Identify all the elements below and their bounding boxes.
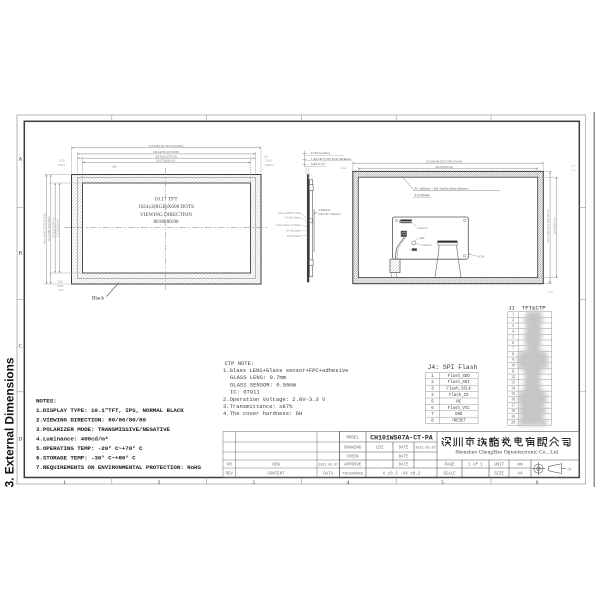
svg-text:SCALE: SCALE — [443, 473, 456, 477]
svg-text:224.72(AA) ±0.2: 224.72(AA) ±0.2 — [156, 160, 176, 163]
svg-text:1.DISPLAY TYPE: 10.1″TFT, IP: 1.DISPLAY TYPE: 10.1″TFT, IPS, NORMAL BL… — [36, 407, 184, 414]
svg-text:Connector: Connector — [417, 227, 428, 230]
svg-text:3. External Dimensions: 3. External Dimensions — [3, 357, 17, 487]
svg-text:3.POLARIZER MODE: TRANSMISSIV: 3.POLARIZER MODE: TRANSMISSIVE/NEGATIVE — [36, 426, 171, 433]
svg-text:3.Transmittance: ≥87%: 3.Transmittance: ≥87% — [223, 403, 293, 410]
svg-text:41.4: 41.4 — [341, 167, 346, 170]
svg-text:CONTENT: CONTENT — [267, 473, 285, 477]
svg-text:1.4(LCD+CTP) Total thickness: 1.4(LCD+CTP) Total thickness — [311, 157, 352, 161]
svg-text:229.56(3M VA): 229.56(3M VA) — [435, 166, 453, 169]
svg-text:16: 16 — [511, 398, 515, 402]
svg-text:5: 5 — [512, 335, 514, 339]
svg-text:A: A — [18, 157, 22, 163]
svg-text:9±0.2: 9±0.2 — [58, 285, 65, 288]
svg-text:Connector: Connector — [421, 244, 432, 247]
svg-text:CHECK: CHECK — [347, 455, 360, 459]
svg-text:253.64(3M OUTLINE 253.64): 253.64(3M OUTLINE 253.64) — [426, 159, 462, 163]
svg-text:VIEWING DIRECTION: VIEWING DIRECTION — [140, 212, 192, 218]
svg-text:3: 3 — [252, 480, 255, 486]
svg-text:12: 12 — [511, 375, 515, 379]
svg-text:2.66±0.2: 2.66±0.2 — [265, 164, 275, 167]
svg-text:1.3MAX: 1.3MAX — [318, 208, 330, 212]
svg-text:6: 6 — [536, 480, 539, 486]
svg-text:3.15: 3.15 — [571, 164, 576, 167]
svg-text:Shenzhen ChengHao Optoelectron: Shenzhen ChengHao Optoelectronic Co., Lt… — [455, 450, 559, 456]
svg-text:TFT:0.3mm: TFT:0.3mm — [287, 235, 301, 238]
svg-text:253.64±0.3(CTP OUTLINE): 253.64±0.3(CTP OUTLINE) — [149, 144, 184, 148]
svg-text:8: 8 — [512, 352, 514, 356]
svg-text:146.12±0.3(CTP OUTLINE): 146.12±0.3(CTP OUTLINE) — [44, 213, 47, 244]
svg-text:15: 15 — [511, 392, 515, 396]
svg-text:NEW: NEW — [272, 464, 280, 468]
svg-text:Flash_VCC: Flash_VCC — [448, 406, 471, 411]
svg-text:18: 18 — [511, 409, 515, 413]
svg-text:7: 7 — [512, 347, 514, 351]
svg-text:Flash_SCLK: Flash_SCLK — [446, 387, 471, 392]
svg-text:12.35: 12.35 — [59, 160, 66, 163]
svg-text:142.12(3M OUTLINE): 142.12(3M OUTLINE) — [48, 216, 51, 241]
svg-text:PCBA: PCBA — [478, 256, 485, 259]
svg-text:OCA:0.15mm: OCA:0.15mm — [285, 216, 302, 219]
svg-text:1: 1 — [512, 313, 514, 317]
svg-text:(with FPC+adhesive): (with FPC+adhesive) — [318, 213, 340, 216]
svg-text:V0: V0 — [227, 464, 232, 468]
svg-text:GND: GND — [455, 413, 463, 417]
svg-text:B: B — [18, 251, 22, 257]
svg-text:Flash_SDO: Flash_SDO — [448, 374, 471, 379]
svg-text:NC: NC — [456, 400, 461, 404]
svg-text:J1 TFT&CTP: J1 TFT&CTP — [508, 304, 546, 311]
svg-text:DRAWING: DRAWING — [344, 447, 362, 451]
svg-text:J4: SPI Flash: J4: SPI Flash — [428, 364, 478, 371]
svg-text:80/80/80/80: 80/80/80/80 — [153, 219, 178, 225]
svg-text:Glass Sensor:0.55mm: Glass Sensor:0.55mm — [276, 224, 301, 227]
svg-text:X ±0.3 XX ±0.2: X ±0.3 XX ±0.2 — [383, 473, 421, 477]
svg-text:Flash_SDI: Flash_SDI — [448, 380, 471, 385]
svg-text:10±0.2: 10±0.2 — [58, 164, 66, 167]
svg-text:APPROVE: APPROVE — [344, 464, 362, 468]
svg-text:DATA: DATA — [323, 473, 333, 477]
svg-text:1 of 1: 1 of 1 — [468, 463, 483, 468]
svg-text:GLASS SENSOR: 0.55mm: GLASS SENSOR: 0.55mm — [230, 381, 297, 388]
svg-text:1.Glass LENS+Glass sensor+FPC+: 1.Glass LENS+Glass sensor+FPC+adhesive — [223, 367, 348, 374]
svg-text:(3): (3) — [568, 467, 572, 471]
svg-text:CH101WS07A-CT-PA: CH101WS07A-CT-PA — [370, 434, 433, 441]
svg-text:229.56±0.2(TP VA): 229.56±0.2(TP VA) — [155, 155, 177, 158]
svg-text:1.15: 1.15 — [571, 169, 576, 172]
svg-text:5.OPERATING TEMP: -20° C~+70°: 5.OPERATING TEMP: -20° C~+70° C — [36, 445, 143, 452]
svg-text:4: 4 — [512, 330, 514, 334]
svg-text:Flash_CS: Flash_CS — [449, 393, 469, 398]
svg-text:120.04(3M VA): 120.04(3M VA) — [554, 217, 557, 234]
svg-text:249.64(3M OUTLINE): 249.64(3M OUTLINE) — [153, 151, 179, 154]
svg-text:3: 3 — [512, 324, 514, 328]
svg-text:PAGE: PAGE — [445, 464, 455, 468]
svg-text:NOTES:: NOTES: — [36, 398, 57, 405]
svg-text:Glass LENS:0.7mm: Glass LENS:0.7mm — [278, 212, 301, 215]
svg-text:7.REQUIREMENTS ON ENVIRONMENTA: 7.REQUIREMENTS ON ENVIRONMENTAL PROTECTI… — [36, 464, 201, 471]
svg-text:CTP NOTE:: CTP NOTE: — [225, 360, 255, 367]
svg-text:19: 19 — [511, 415, 515, 419]
svg-text:C: C — [18, 344, 22, 350]
svg-text:GLASS LENS: 0.7mm: GLASS LENS: 0.7mm — [230, 374, 287, 381]
svg-text:MODEL: MODEL — [346, 436, 359, 441]
svg-text:128.36±0.2(TP VA): 128.36±0.2(TP VA) — [52, 217, 55, 238]
svg-text:125.22(AA)±0.2: 125.22(AA)±0.2 — [57, 218, 60, 237]
svg-text:4.Luminance: 400cd/m²: 4.Luminance: 400cd/m² — [36, 436, 108, 443]
svg-text:A4: A4 — [518, 473, 523, 477]
svg-text:1: 1 — [63, 480, 66, 486]
svg-text:9: 9 — [512, 358, 514, 362]
svg-text:DATE: DATE — [399, 447, 409, 451]
svg-text:4.The cover hardness: 6H: 4.The cover hardness: 6H — [223, 410, 302, 417]
svg-text:1024x3(RGB)X600 DOTS: 1024x3(RGB)X600 DOTS — [138, 203, 194, 210]
svg-text:20: 20 — [511, 420, 515, 424]
svg-text:Black: Black — [92, 296, 105, 302]
svg-text:2022.03.07: 2022.03.07 — [415, 446, 435, 450]
svg-text:4: 4 — [347, 480, 350, 486]
svg-text:13: 13 — [511, 381, 515, 385]
svg-text:DATE: DATE — [399, 455, 409, 459]
svg-text:2022.03.07: 2022.03.07 — [318, 462, 338, 466]
svg-text:144.12(3M OUTLINE 144.12): 144.12(3M OUTLINE 144.12) — [547, 209, 550, 242]
svg-text:10: 10 — [511, 364, 515, 368]
svg-text:PC stiffener + 3M double-sided: PC stiffener + 3M double-sided adhesive — [415, 186, 470, 190]
svg-text:T=0.85mm: T=0.85mm — [415, 193, 430, 197]
svg-text:14: 14 — [511, 386, 515, 390]
svg-text:2.5±0.1: 2.5±0.1 — [265, 160, 274, 163]
svg-text:AMP: AMP — [419, 237, 425, 240]
svg-text:GAP 0.175: GAP 0.175 — [311, 162, 326, 166]
svg-text:1.86: 1.86 — [112, 166, 117, 169]
svg-text:REV: REV — [226, 473, 234, 477]
svg-text:UNIT: UNIT — [494, 464, 504, 468]
svg-text:LDZ: LDZ — [376, 447, 384, 451]
svg-text:2: 2 — [512, 318, 514, 322]
svg-text:(2.4): (2.4) — [58, 280, 63, 283]
svg-text:11: 11 — [511, 369, 515, 373]
svg-text:(5.15): (5.15) — [547, 291, 553, 294]
svg-text:mm: mm — [518, 464, 523, 468]
svg-text:6.STORAGE TEMP: -30° C~+80° C: 6.STORAGE TEMP: -30° C~+80° C — [36, 455, 136, 462]
svg-text:SIZE: SIZE — [494, 473, 504, 477]
svg-text:DATE: DATE — [399, 464, 409, 468]
svg-text:2.Operation Voltage: 2.8V-3.3: 2.Operation Voltage: 2.8V-3.3 V — [223, 396, 326, 403]
svg-text:0.7±0.1(Glass): 0.7±0.1(Glass) — [311, 151, 330, 155]
svg-text:0.55: 0.55 — [59, 289, 64, 292]
svg-text:OCA:0.2mm: OCA:0.2mm — [286, 229, 301, 232]
svg-text:6: 6 — [512, 341, 514, 345]
svg-text:17: 17 — [511, 403, 515, 407]
svg-text:10.1″ TFT: 10.1″ TFT — [154, 197, 178, 203]
svg-text:5: 5 — [441, 480, 444, 486]
svg-text:IC: GT911: IC: GT911 — [230, 389, 260, 396]
svg-text:D: D — [18, 437, 22, 443]
svg-text:TOLERANCE: TOLERANCE — [342, 473, 364, 477]
svg-text:2: 2 — [158, 480, 161, 486]
svg-text:/RESET: /RESET — [451, 419, 466, 424]
svg-text:2.VIEWING DIRECTION: 80/80/80: 2.VIEWING DIRECTION: 80/80/80/80 — [36, 417, 146, 424]
